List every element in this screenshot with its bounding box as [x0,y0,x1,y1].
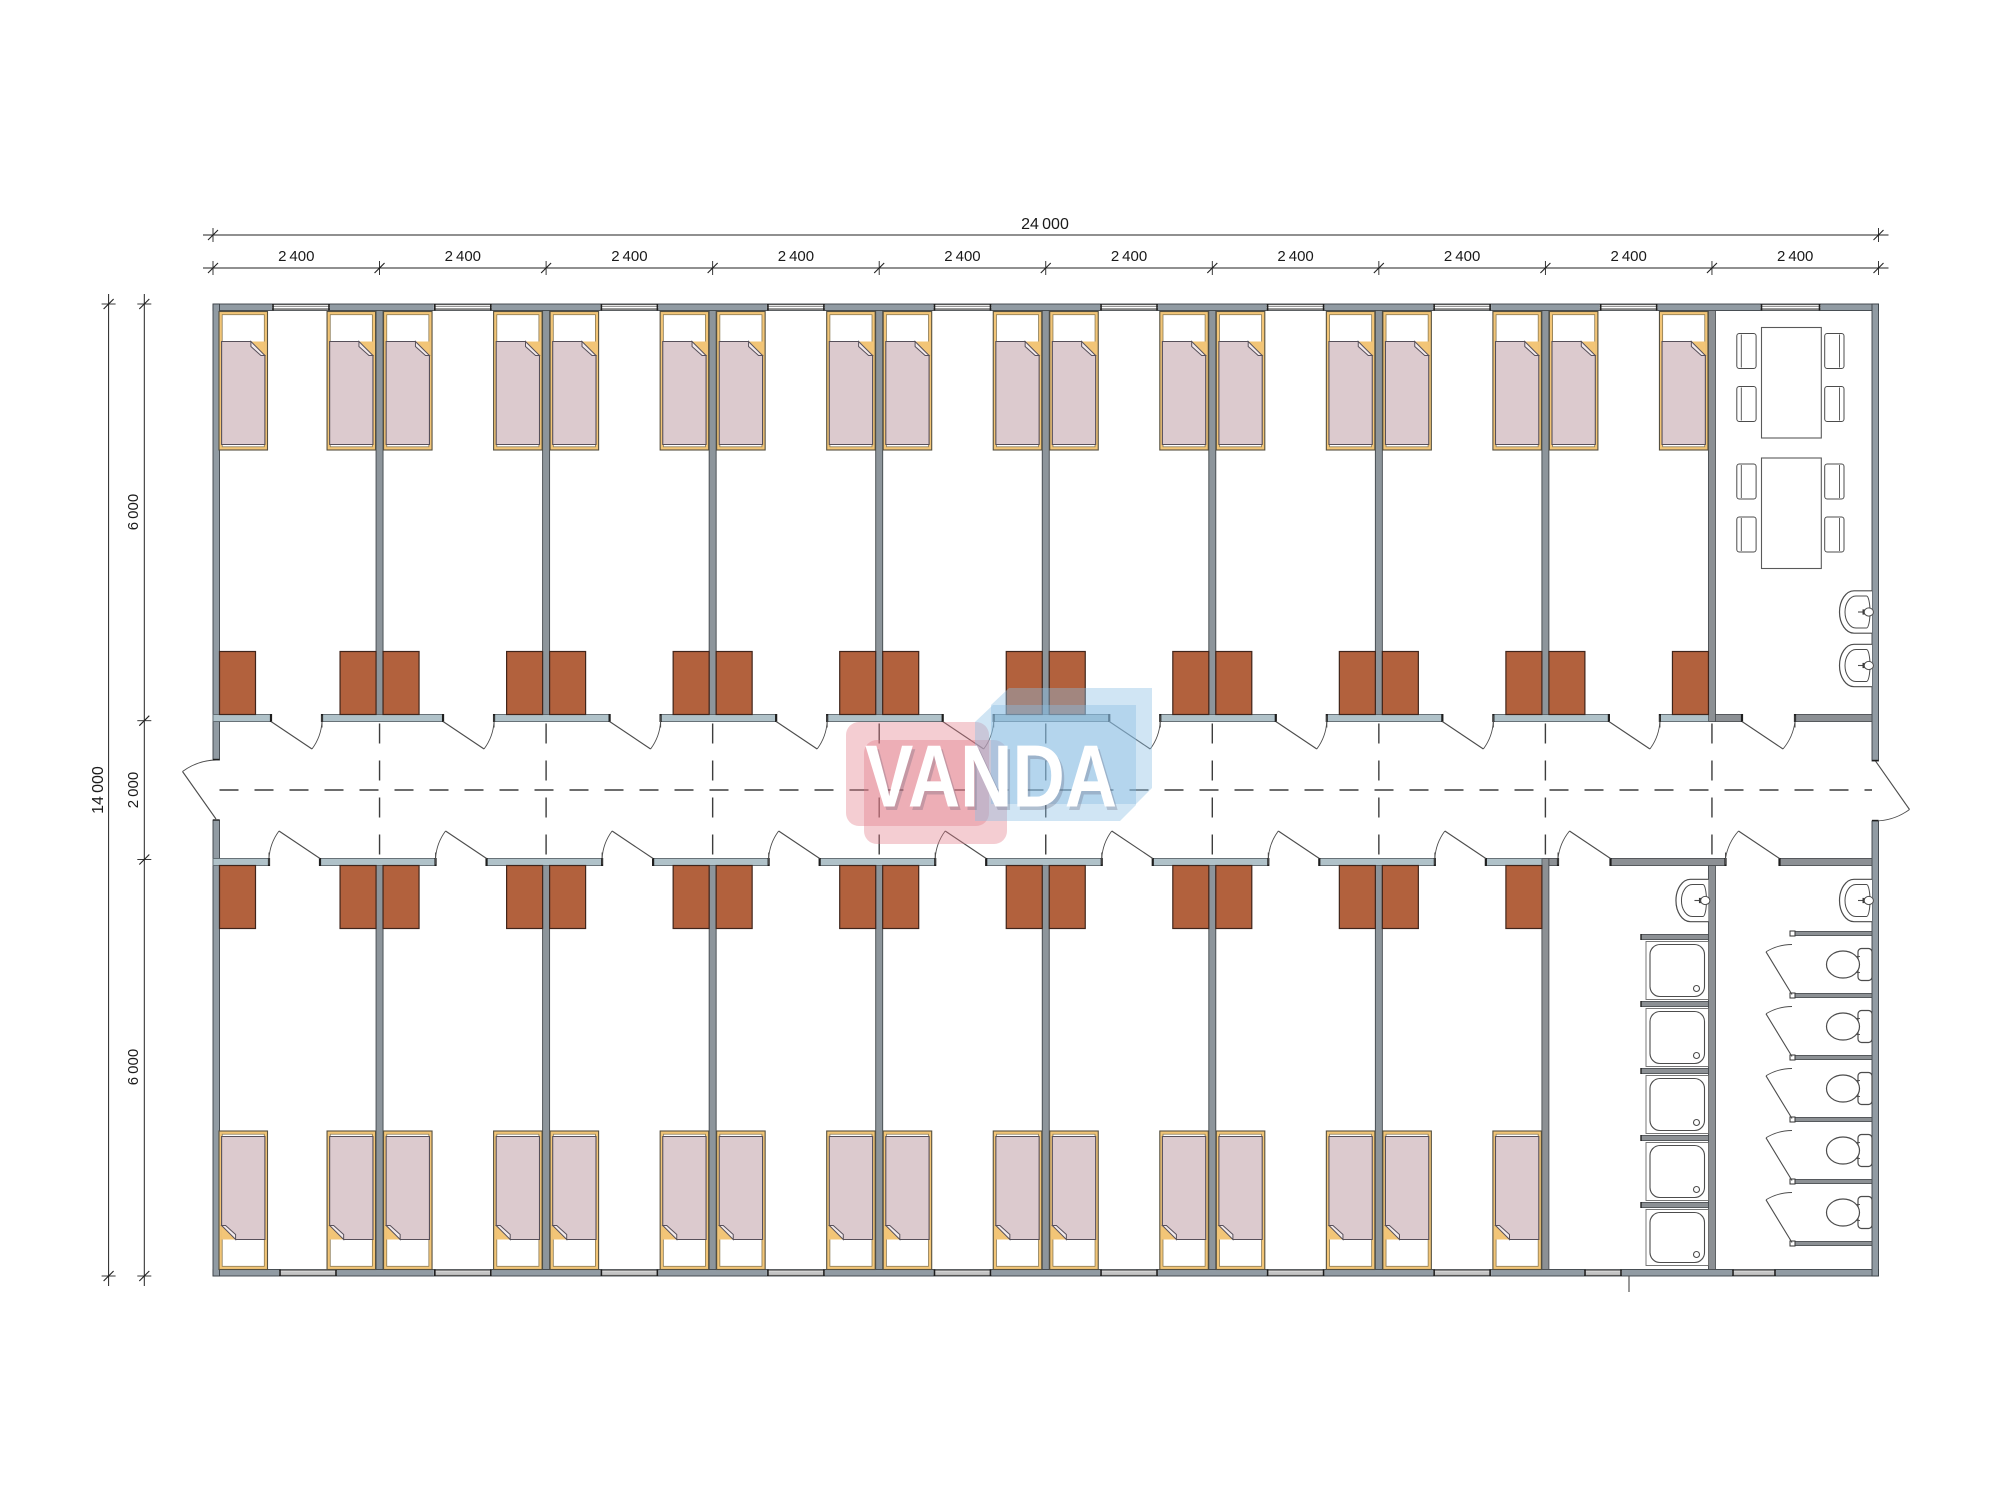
svg-text:2 400: 2 400 [1444,248,1480,265]
svg-text:2 400: 2 400 [1777,248,1813,265]
svg-text:VANDA: VANDA [865,727,1117,826]
svg-text:6 000: 6 000 [125,1049,142,1085]
svg-text:2 400: 2 400 [611,248,647,265]
svg-text:2 400: 2 400 [1610,248,1646,265]
svg-text:2 400: 2 400 [778,248,814,265]
svg-text:2 400: 2 400 [278,248,314,265]
svg-text:2 400: 2 400 [944,248,980,265]
svg-text:2 000: 2 000 [125,772,142,808]
svg-text:2 400: 2 400 [1111,248,1147,265]
svg-text:14 000: 14 000 [90,766,107,814]
svg-text:24 000: 24 000 [1021,216,1069,233]
svg-text:2 400: 2 400 [445,248,481,265]
svg-text:6 000: 6 000 [125,494,142,530]
svg-text:2 400: 2 400 [1277,248,1313,265]
